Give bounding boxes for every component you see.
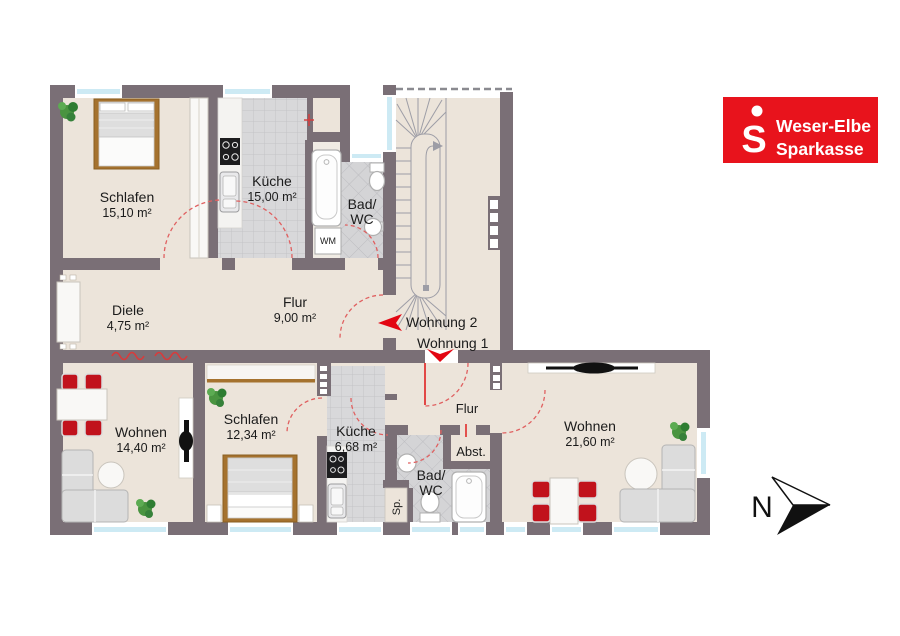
window (612, 522, 660, 535)
room-label-abst: Abst. (456, 444, 486, 459)
logo-line1: Weser-Elbe (776, 116, 871, 136)
room-label-wohnen-links: Wohnen (115, 424, 167, 440)
chair-icon (532, 481, 550, 498)
room-area-flur-og: 9,00 m² (274, 311, 316, 325)
window (92, 522, 168, 535)
room-label-schlafen-og: Schlafen (100, 189, 154, 205)
room-label-bad-og-1: Bad/ (348, 196, 377, 212)
bathtub-icon (452, 472, 486, 522)
toilet-icon (370, 163, 385, 191)
sparkasse-logo: S Weser-Elbe Sparkasse (723, 97, 878, 163)
wohnung2-label: Wohnung 2 (406, 314, 478, 330)
room-label-bad-eg-2: WC (419, 482, 442, 498)
room-label-bad-eg-1: Bad/ (417, 467, 446, 483)
room-label-kueche-eg: Küche (336, 423, 376, 439)
window (350, 150, 383, 162)
bathtub-icon (312, 150, 341, 226)
wardrobe-front (207, 379, 315, 383)
washing-machine: WM (315, 228, 341, 254)
hall-cabinet-icon (57, 282, 80, 342)
room-area-kueche-og: 15,00 m² (247, 190, 296, 204)
chair-icon (62, 420, 78, 436)
room-label-schlafen-eg: Schlafen (224, 411, 278, 427)
logo-line2: Sparkasse (776, 139, 864, 159)
room-label-sp: Sp. (391, 499, 403, 516)
room-label-diele: Diele (112, 302, 144, 318)
window (458, 522, 486, 535)
room-area-wohnen-rechts: 21,60 m² (565, 435, 614, 449)
tv-icon (179, 398, 193, 478)
window (223, 85, 272, 98)
chair-icon (578, 504, 597, 522)
logo-s-icon: S (741, 119, 766, 161)
window (410, 522, 452, 535)
room-label-flur-og: Flur (283, 294, 307, 310)
room-label-flur-eg: Flur (456, 401, 479, 416)
kitchen-sink-icon (328, 484, 346, 518)
logo-dot (752, 106, 763, 117)
room-area-kueche-eg: 6,68 m² (335, 440, 377, 454)
bed-icon (94, 99, 159, 169)
window (383, 95, 396, 152)
wardrobe-icon (207, 365, 315, 381)
room-area-wohnen-links: 14,40 m² (116, 441, 165, 455)
north-arrow-icon (772, 477, 830, 505)
chair-icon (85, 420, 102, 436)
kitchen-sink-icon (220, 172, 239, 212)
tv-icon (528, 363, 655, 374)
room-label-kueche-og: Küche (252, 173, 292, 189)
stove-icon (327, 452, 347, 478)
room-label-bad-og-2: WC (350, 211, 373, 227)
wm-label: WM (320, 236, 336, 246)
window (228, 522, 293, 535)
window (504, 522, 527, 535)
stove-icon (220, 138, 240, 165)
window (337, 522, 383, 535)
side-table-icon (98, 462, 124, 488)
room-area-diele: 4,75 m² (107, 319, 149, 333)
side-table-icon (625, 458, 657, 490)
north-arrow-icon (777, 505, 830, 535)
room-label-wohnen-rechts: Wohnen (564, 418, 616, 434)
dining-table-icon (57, 389, 107, 420)
room-area-schlafen-og: 15,10 m² (102, 206, 151, 220)
chair-icon (532, 504, 550, 522)
window (697, 428, 710, 478)
lower-kueche (327, 446, 347, 522)
wohnung1-label: Wohnung 1 (417, 335, 489, 351)
floor-plan-page: WM (0, 0, 900, 636)
window (75, 85, 122, 98)
floor-plan: WM (0, 0, 900, 636)
room-area-schlafen-eg: 12,34 m² (226, 428, 275, 442)
chair-icon (578, 481, 597, 498)
bed-icon (207, 455, 313, 522)
chair-icon (62, 374, 78, 390)
north-label: N (751, 491, 773, 524)
chair-icon (85, 374, 102, 390)
dining-table-icon (550, 478, 578, 524)
compass: N (751, 477, 830, 535)
sink-icon (397, 454, 416, 472)
